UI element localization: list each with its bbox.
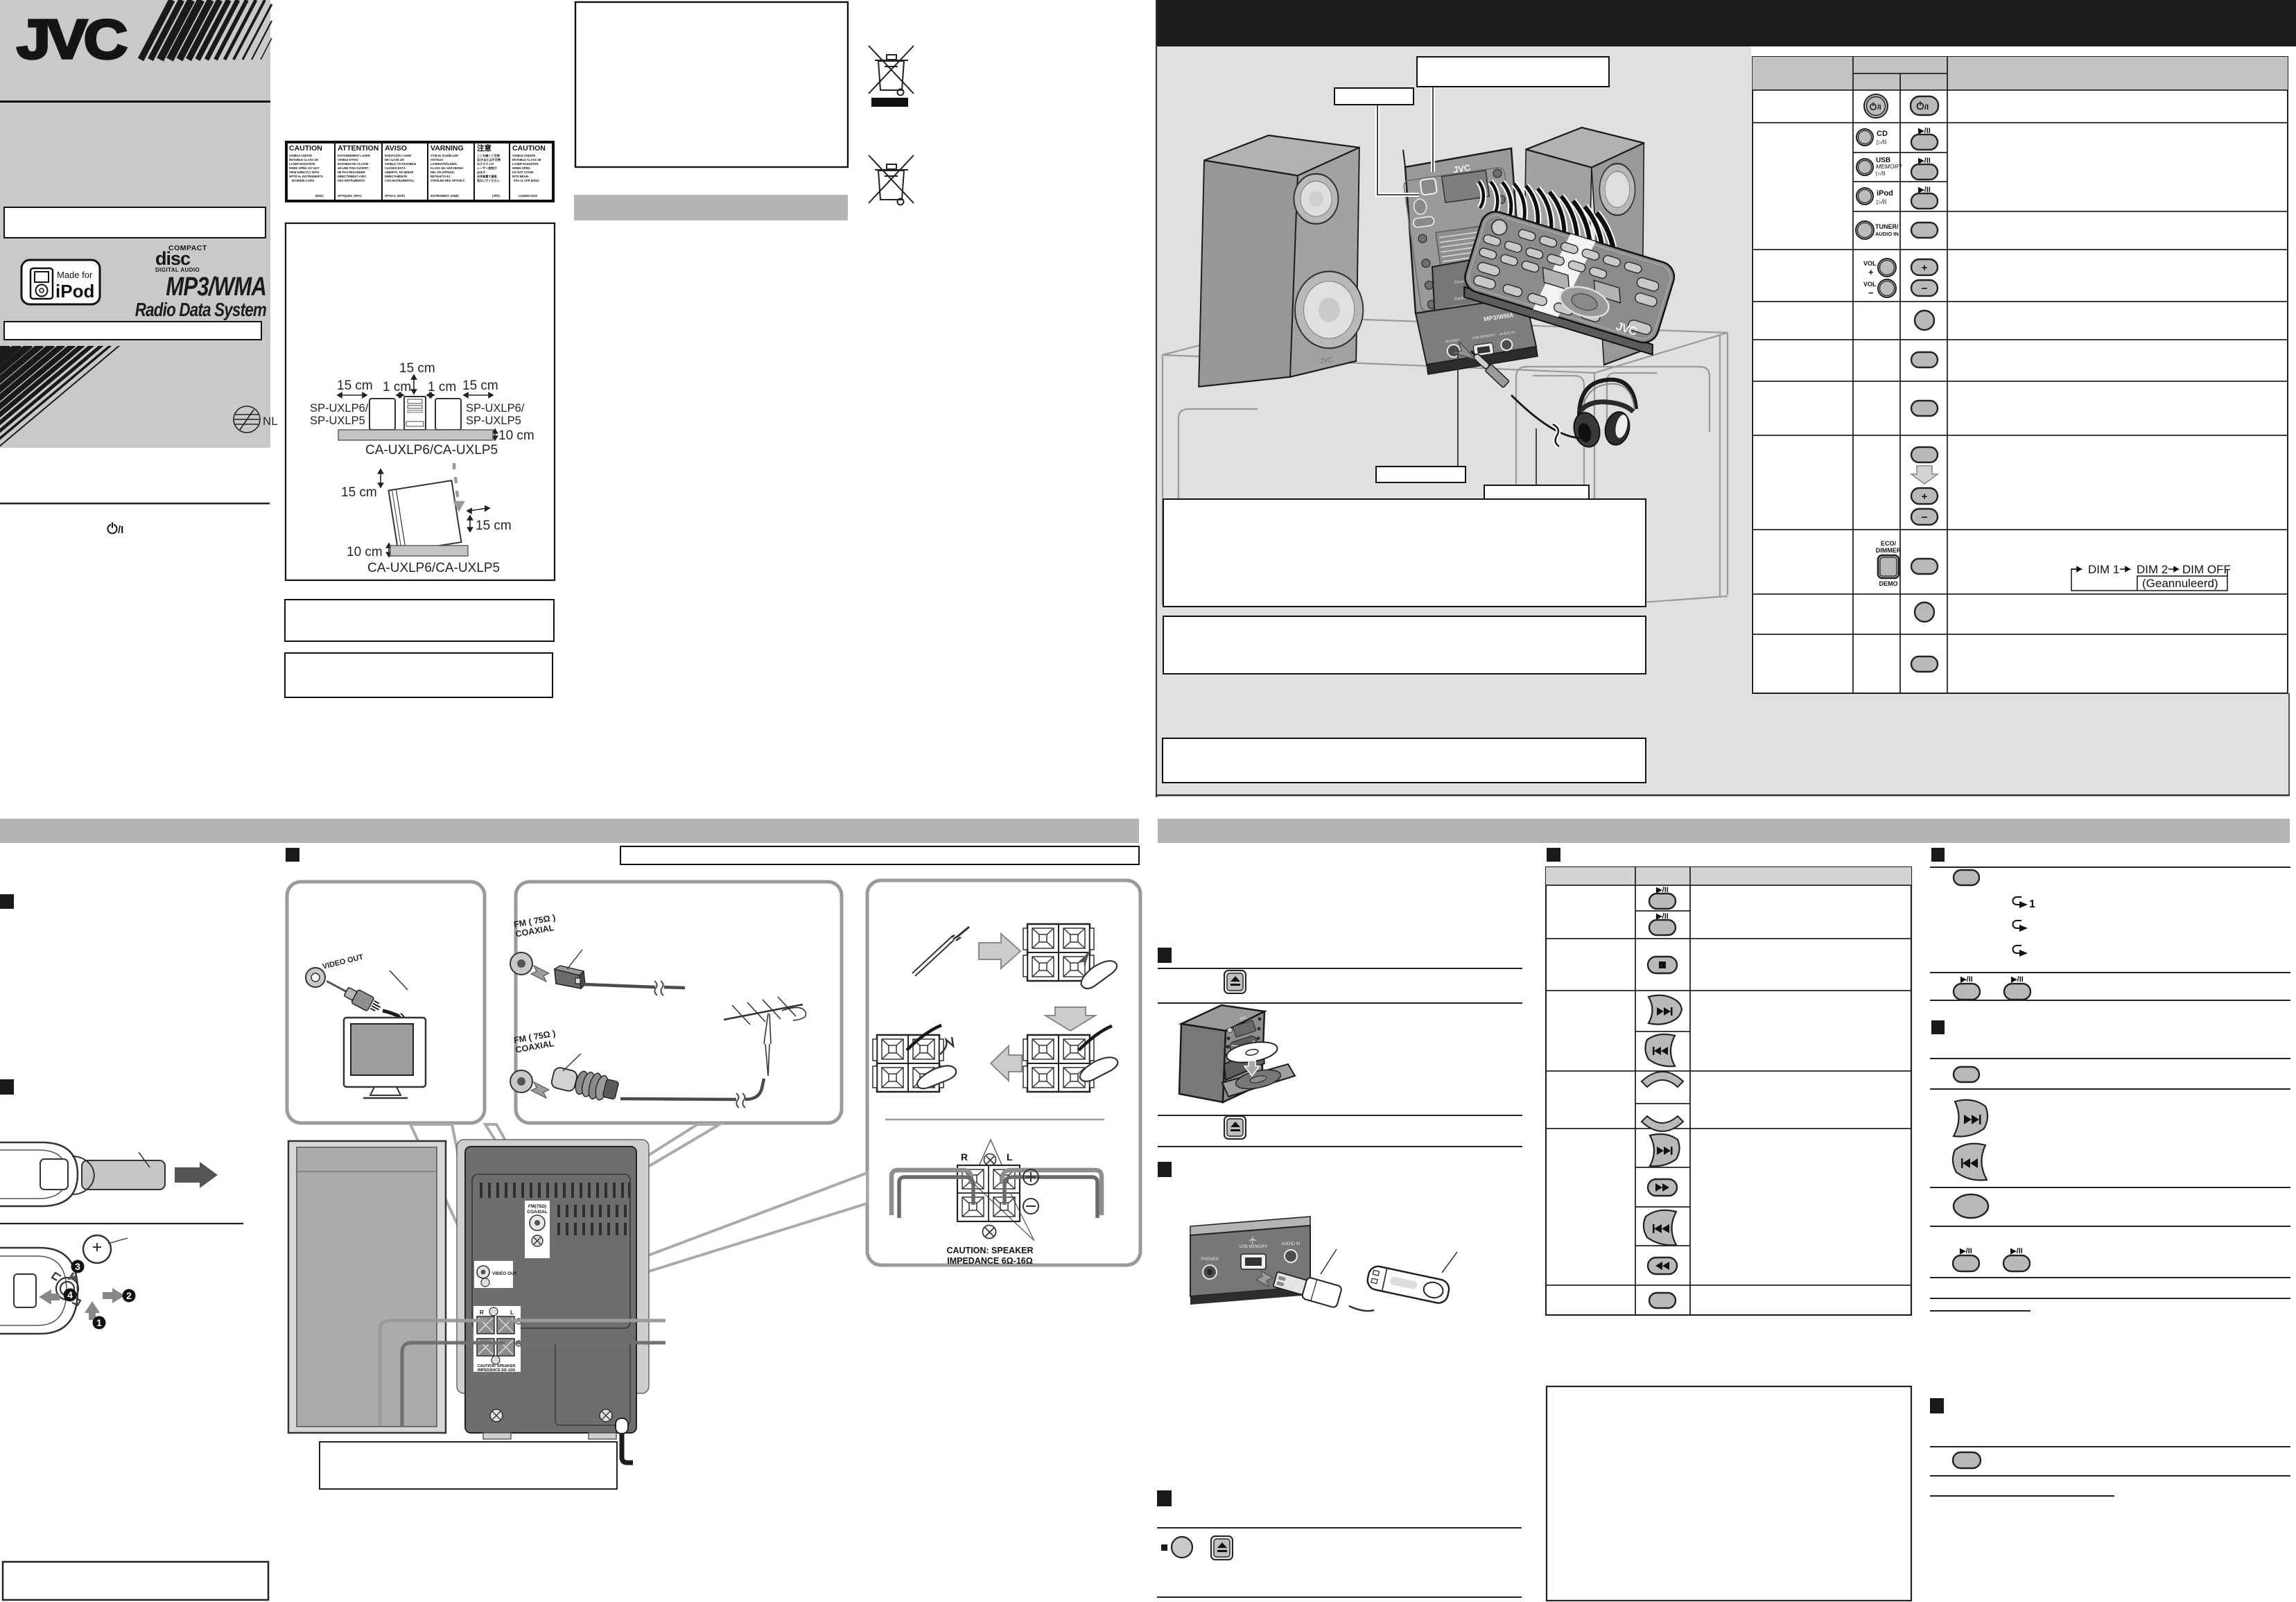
svg-text:+: + [1868, 267, 1874, 277]
svg-text:INVISIBLE DE CLASSE: INVISIBLE DE CLASSE [338, 162, 369, 166]
svg-text:及び/または不可視: 及び/または不可視 [477, 157, 501, 162]
svg-text:1 cm: 1 cm [383, 380, 411, 394]
svg-text:1: 1 [2029, 898, 2035, 910]
svg-text:VIEW DIRECTLY WITH: VIEW DIRECTLY WITH [289, 171, 319, 174]
svg-text:(JPN): (JPN) [492, 194, 500, 198]
svg-text:L: L [510, 1309, 514, 1316]
svg-text:ÓPTICO. (ESP): ÓPTICO. (ESP) [385, 194, 406, 198]
svg-text:15 cm: 15 cm [462, 378, 498, 393]
svg-text:R: R [480, 1309, 484, 1316]
svg-text:Made for: Made for [57, 270, 93, 280]
svg-text:DIRECTAMENTE: DIRECTAMENTE [385, 175, 407, 178]
svg-text:レーザー放射が: レーザー放射が [477, 166, 497, 170]
svg-text:ABIERTO. NO MIRAR: ABIERTO. NO MIRAR [385, 171, 413, 174]
svg-text:▶/II: ▶/II [2010, 1247, 2023, 1255]
svg-text:DIM OFF: DIM OFF [2182, 563, 2231, 576]
svg-text:/I: /I [1924, 103, 1929, 112]
svg-text:2: 2 [126, 1290, 132, 1301]
svg-text:1: 1 [96, 1317, 102, 1328]
svg-text:CAUTION: SPEAKER: CAUTION: SPEAKER [946, 1246, 1033, 1255]
svg-text:FM(75Ω): FM(75Ω) [528, 1204, 546, 1209]
svg-text:AUDIO IN: AUDIO IN [1875, 231, 1899, 237]
svg-text:15 cm: 15 cm [476, 519, 512, 533]
svg-text:INSTRUMENT. (SWE): INSTRUMENT. (SWE) [430, 194, 459, 198]
svg-text:VARNING: VARNING [430, 144, 464, 153]
svg-text:R: R [961, 1151, 968, 1163]
svg-text:TUNER/: TUNER/ [1875, 223, 1899, 230]
svg-text:AUDIO IN: AUDIO IN [1282, 1242, 1301, 1246]
svg-text:LV44603-003A: LV44603-003A [519, 194, 538, 198]
svg-text:COAXIAL: COAXIAL [527, 1210, 547, 1214]
svg-text:+: + [1922, 262, 1928, 274]
svg-text:DIRECTEMENT AVEC: DIRECTEMENT AVEC [338, 175, 367, 178]
svg-text:▶/II: ▶/II [1960, 975, 1973, 984]
svg-text:▶/II: ▶/II [1959, 1247, 1972, 1255]
svg-text:OPTICAL INSTRUMENTS.: OPTICAL INSTRUMENTS. [289, 175, 324, 178]
svg-text:(Geannuleerd): (Geannuleerd) [2142, 577, 2218, 590]
svg-text:SP-UXLP6/: SP-UXLP6/ [310, 402, 369, 415]
svg-text:+: + [1922, 491, 1928, 503]
svg-text:▷/II: ▷/II [1876, 170, 1886, 177]
svg-text:CUANDO ESTÁ: CUANDO ESTÁ [385, 166, 406, 170]
svg-text:1M UNE FOIS OUVERT.: 1M UNE FOIS OUVERT. [338, 166, 369, 170]
svg-text:(ENG): (ENG) [315, 194, 324, 198]
svg-text:OSYNLIG: OSYNLIG [430, 158, 443, 162]
svg-text:BETRAKTA EJ: BETRAKTA EJ [430, 175, 450, 178]
svg-text:INTO BEAM.: INTO BEAM. [512, 175, 529, 178]
svg-text:DIM 2: DIM 2 [2137, 563, 2168, 576]
svg-text:iPod: iPod [1877, 189, 1893, 198]
svg-text:CON INSTRUMENTAL: CON INSTRUMENTAL [385, 179, 415, 182]
svg-text:−: − [1922, 283, 1928, 295]
svg-text:▷/II: ▷/II [1877, 198, 1886, 205]
svg-text:iPod: iPod [55, 281, 94, 302]
svg-text:INVISIBLE CLASS 3B: INVISIBLE CLASS 3B [512, 158, 541, 162]
svg-text:15 cm: 15 cm [341, 485, 377, 500]
svg-text:SYNLIG OCH/ELLER: SYNLIG OCH/ELLER [430, 154, 458, 157]
svg-text:RADIACIÓN LÁSER: RADIACIÓN LÁSER [385, 154, 411, 157]
svg-text:LASER RADIATION: LASER RADIATION [512, 162, 538, 166]
svg-text:/I: /I [118, 524, 123, 536]
svg-text:SP-UXLP5: SP-UXLP5 [310, 415, 365, 427]
svg-text:のクラス１M: のクラス１M [477, 162, 494, 166]
svg-text:PHONES: PHONES [1201, 1257, 1218, 1262]
svg-text:USB MEMORY: USB MEMORY [1240, 1245, 1268, 1249]
svg-text:ここを開くと可視: ここを開くと可視 [477, 153, 501, 157]
svg-text:NE PAS REGARDER: NE PAS REGARDER [338, 171, 365, 174]
svg-text:INVISIBLE CLASS 1M: INVISIBLE CLASS 1M [289, 158, 318, 162]
svg-text:3: 3 [75, 1261, 80, 1272]
svg-text:JVC: JVC [17, 8, 126, 70]
svg-text:JVC: JVC [1320, 356, 1333, 366]
svg-text:DES INSTRUMENTS: DES INSTRUMENTS [338, 179, 365, 182]
svg-text:1 cm: 1 cm [428, 380, 456, 394]
svg-text:15 cm: 15 cm [337, 378, 373, 393]
svg-text:CA-UXLP6/CA-UXLP5: CA-UXLP6/CA-UXLP5 [367, 561, 500, 575]
svg-text:DIMMER: DIMMER [1876, 547, 1902, 554]
svg-text:MP3/WMA: MP3/WMA [166, 272, 266, 302]
svg-text:Radio Data System: Radio Data System [135, 299, 267, 321]
svg-text:SP-UXLP5: SP-UXLP5 [466, 415, 521, 427]
svg-text:CAUTION: CAUTION [289, 144, 322, 153]
svg-text:光学装置で直接: 光学装置で直接 [476, 174, 498, 178]
svg-text:/I: /I [1877, 104, 1881, 112]
svg-text:ECO/: ECO/ [1881, 540, 1897, 547]
svg-text:▷/II: ▷/II [1877, 139, 1886, 146]
svg-text:4: 4 [67, 1289, 73, 1300]
svg-text:DE CLASE 1M: DE CLASE 1M [385, 158, 404, 162]
svg-text:−: − [1922, 512, 1928, 523]
svg-text:FDA 21 CFR (ENG): FDA 21 CFR (ENG) [514, 179, 539, 182]
svg-text:注意: 注意 [477, 143, 492, 153]
svg-text:CAUTION: CAUTION [512, 144, 546, 153]
svg-text:15 cm: 15 cm [399, 361, 435, 376]
svg-text:CA-UXLP6/CA-UXLP5: CA-UXLP6/CA-UXLP5 [365, 443, 498, 458]
svg-text:AVISO: AVISO [385, 144, 407, 153]
svg-text:ATTENTION: ATTENTION [338, 144, 379, 153]
svg-text:VIDEO OUT: VIDEO OUT [492, 1271, 517, 1276]
svg-text:SP-UXLP6/: SP-UXLP6/ [466, 402, 525, 415]
svg-text:VISIBLE ET/OU: VISIBLE ET/OU [338, 158, 358, 162]
svg-text:IEC60825-1:2001: IEC60825-1:2001 [292, 179, 315, 182]
svg-text:disc: disc [155, 248, 191, 269]
svg-text:DO NOT STARE: DO NOT STARE [512, 171, 534, 174]
svg-text:IMPEDANCE 6Ω-16Ω: IMPEDANCE 6Ω-16Ω [478, 1368, 516, 1373]
svg-text:VOL: VOL [1863, 281, 1877, 288]
svg-text:VISIBLE Y/O INVISIBLE: VISIBLE Y/O INVISIBLE [385, 162, 416, 166]
svg-text:NL: NL [263, 415, 278, 428]
svg-text:WHEN OPEN. DO NOT: WHEN OPEN. DO NOT [289, 166, 320, 170]
svg-text:DEMO: DEMO [1879, 580, 1898, 587]
svg-text:RAYONNEMENT LASER: RAYONNEMENT LASER [338, 154, 370, 157]
svg-text:見ないでください.: 見ないでください. [476, 178, 501, 182]
svg-text:L: L [1007, 1151, 1013, 1163]
svg-text:10 cm: 10 cm [498, 428, 534, 443]
svg-text:VISIBLE AND/OR: VISIBLE AND/OR [512, 154, 535, 157]
svg-text:KLASS 1M, NÄR DENNA: KLASS 1M, NÄR DENNA [430, 166, 464, 170]
svg-text:DIM 1: DIM 1 [2088, 563, 2119, 576]
svg-text:MEMORY: MEMORY [1876, 163, 1903, 170]
svg-text:▶/II: ▶/II [2010, 975, 2024, 984]
svg-text:LASER RADIATION: LASER RADIATION [289, 162, 315, 166]
svg-text:OPTIQUES. (FRA): OPTIQUES. (FRA) [338, 194, 362, 198]
svg-text:DEL ÄR ÖPPNAD.: DEL ÄR ÖPPNAD. [430, 171, 455, 174]
svg-text:LASERSTRÅLNING,: LASERSTRÅLNING, [430, 162, 458, 166]
svg-text:VOL: VOL [1863, 260, 1877, 267]
svg-text:STRÅLEN MED OPTISKA: STRÅLEN MED OPTISKA [430, 179, 464, 182]
svg-text:CD: CD [1877, 130, 1888, 138]
svg-text:−: − [1868, 288, 1874, 298]
svg-text:VISIBLE AND/OR: VISIBLE AND/OR [289, 154, 312, 157]
svg-text:IMPEDANCE 6Ω-16Ω: IMPEDANCE 6Ω-16Ω [947, 1256, 1033, 1266]
svg-text:出ます.: 出ます. [477, 170, 486, 174]
svg-text:10 cm: 10 cm [347, 545, 383, 559]
svg-text:WHEN OPEN.: WHEN OPEN. [512, 166, 530, 170]
